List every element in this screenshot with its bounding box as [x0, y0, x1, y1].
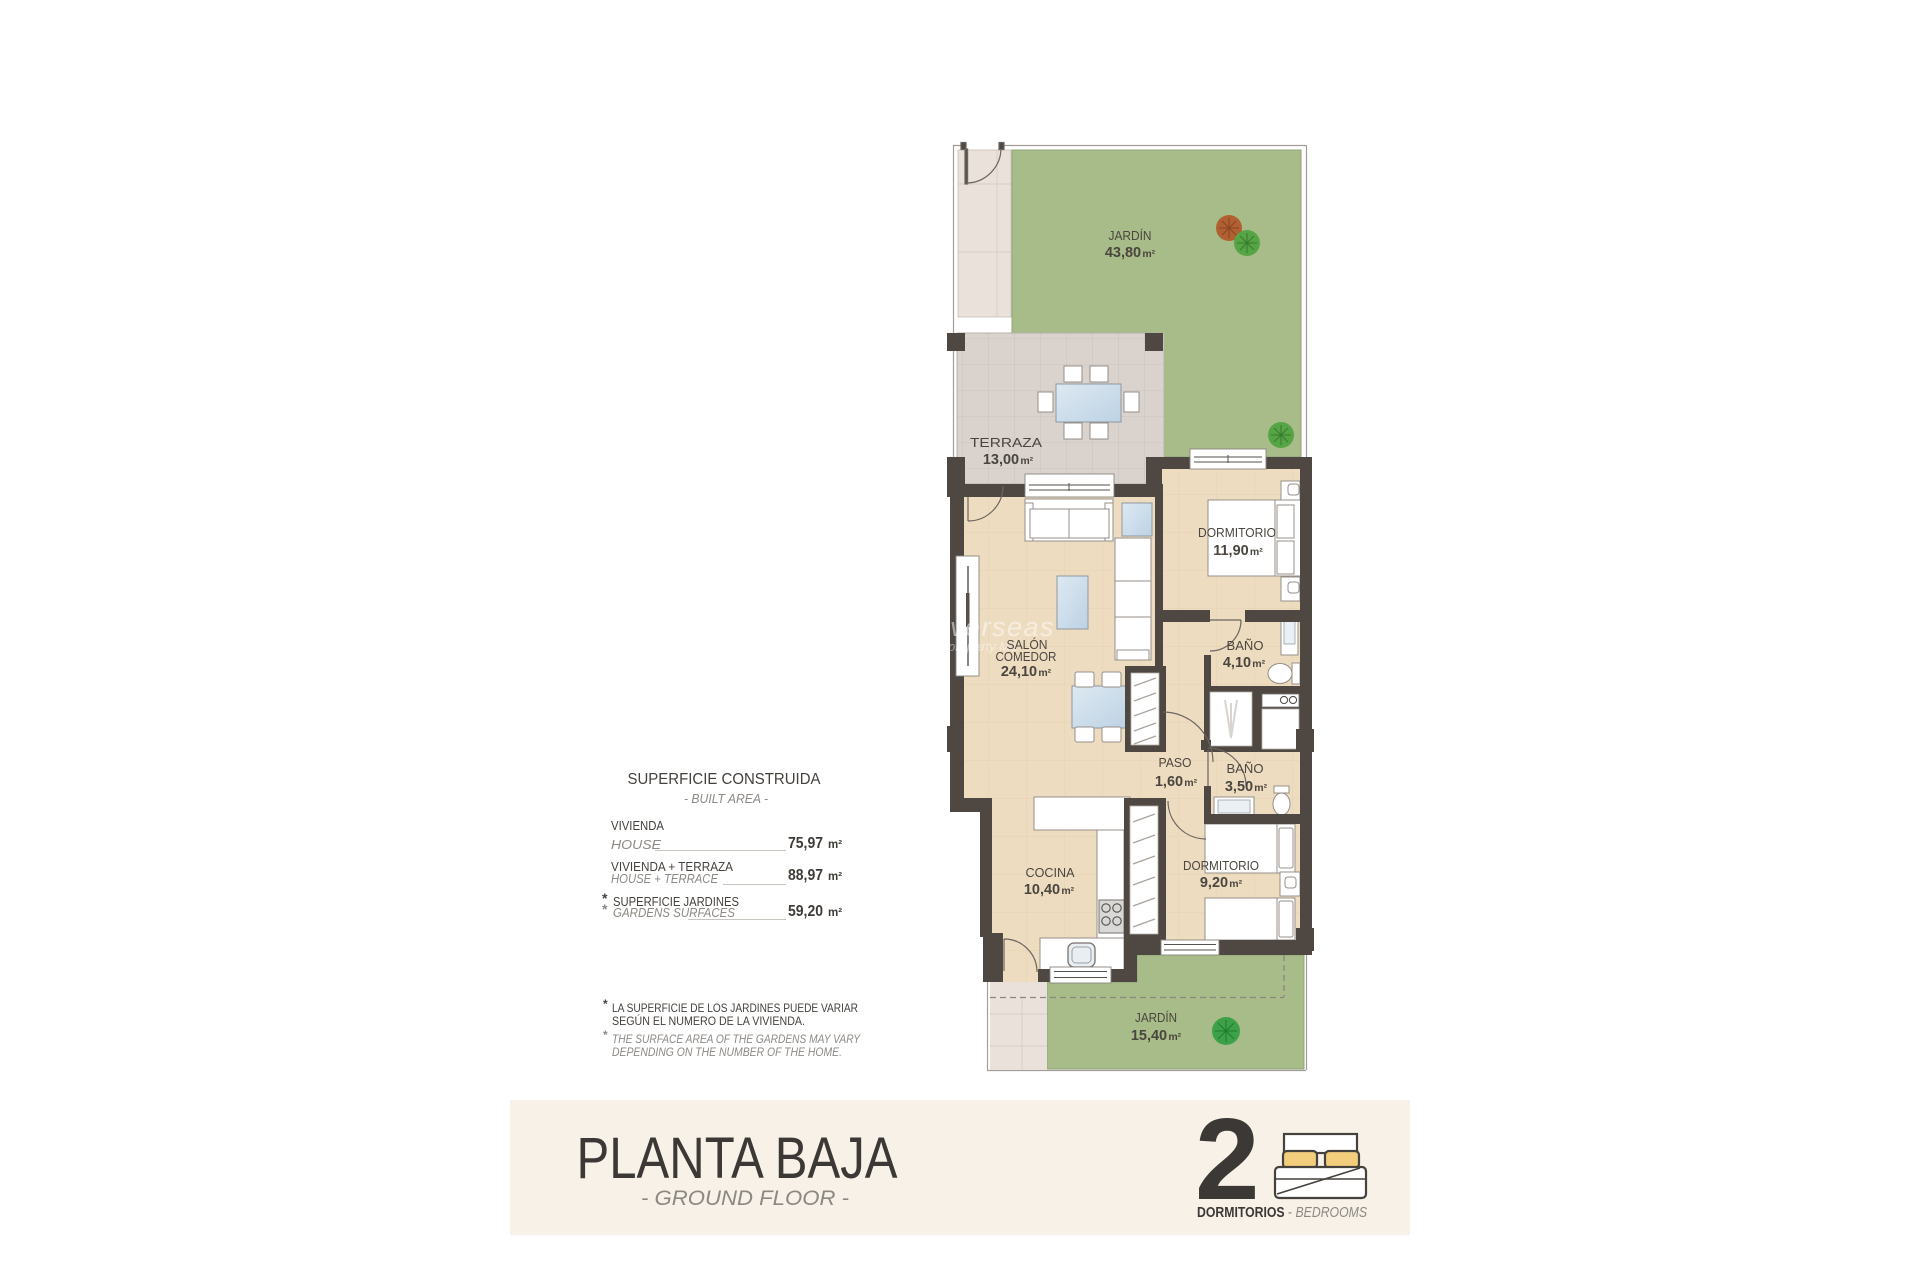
svg-text:JARDÍN: JARDÍN	[1109, 228, 1152, 243]
svg-text:*: *	[603, 1028, 608, 1042]
svg-text:LA SUPERFICIE DE LOS JARDINES: LA SUPERFICIE DE LOS JARDINES PUEDE VARI…	[612, 1001, 858, 1015]
svg-text:DORMITORIO: DORMITORIO	[1183, 858, 1259, 873]
svg-text:VIVIENDA: VIVIENDA	[611, 818, 664, 833]
svg-text:- GROUND FLOOR -: - GROUND FLOOR -	[641, 1187, 849, 1210]
svg-text:9,20 m²: 9,20 m²	[1200, 875, 1243, 891]
svg-text:1,60 m²: 1,60 m²	[1155, 774, 1198, 790]
svg-text:HOUSE + TERRACE: HOUSE + TERRACE	[611, 871, 718, 886]
svg-text:HOUSE: HOUSE	[611, 837, 661, 852]
svg-text:13,00 m²: 13,00 m²	[983, 452, 1034, 468]
svg-text:PLANTA BAJA: PLANTA BAJA	[577, 1126, 898, 1191]
svg-text:COCINA: COCINA	[1026, 865, 1075, 880]
svg-text:SEGÚN EL NUMERO DE LA VIVIENDA: SEGÚN EL NUMERO DE LA VIVIENDA.	[612, 1013, 805, 1028]
svg-text:3,50 m²: 3,50 m²	[1225, 779, 1268, 795]
svg-text:10,40 m²: 10,40 m²	[1024, 882, 1075, 898]
svg-text:GARDENS SURFACES: GARDENS SURFACES	[613, 905, 735, 920]
svg-text:4,10 m²: 4,10 m²	[1223, 655, 1266, 671]
svg-text:TERRAZA: TERRAZA	[970, 435, 1042, 450]
svg-text:DORMITORIOS - BEDROOMS: DORMITORIOS - BEDROOMS	[1197, 1205, 1367, 1221]
svg-text:DEPENDING ON THE NUMBER OF THE: DEPENDING ON THE NUMBER OF THE HOME.	[612, 1045, 842, 1059]
svg-text:SUPERFICIE CONSTRUIDA: SUPERFICIE CONSTRUIDA	[628, 771, 821, 788]
svg-text:*: *	[603, 997, 608, 1011]
svg-text:24,10 m²: 24,10 m²	[1001, 664, 1052, 680]
svg-text:BAÑO: BAÑO	[1227, 638, 1264, 653]
svg-text:DORMITORIO: DORMITORIO	[1198, 525, 1276, 540]
svg-text:COMEDOR: COMEDOR	[996, 649, 1057, 664]
svg-text:43,80 m²: 43,80 m²	[1105, 245, 1156, 261]
svg-text:PASO: PASO	[1159, 755, 1192, 770]
svg-text:*: *	[602, 901, 608, 917]
svg-text:15,40 m²: 15,40 m²	[1131, 1028, 1182, 1044]
svg-text:JARDÍN: JARDÍN	[1135, 1010, 1177, 1025]
svg-text:11,90 m²: 11,90 m²	[1213, 543, 1263, 559]
svg-text:- BUILT AREA -: - BUILT AREA -	[684, 792, 768, 806]
svg-text:THE SURFACE AREA OF THE GARDEN: THE SURFACE AREA OF THE GARDENS MAY VARY	[612, 1032, 861, 1046]
svg-text:BAÑO: BAÑO	[1227, 761, 1264, 776]
